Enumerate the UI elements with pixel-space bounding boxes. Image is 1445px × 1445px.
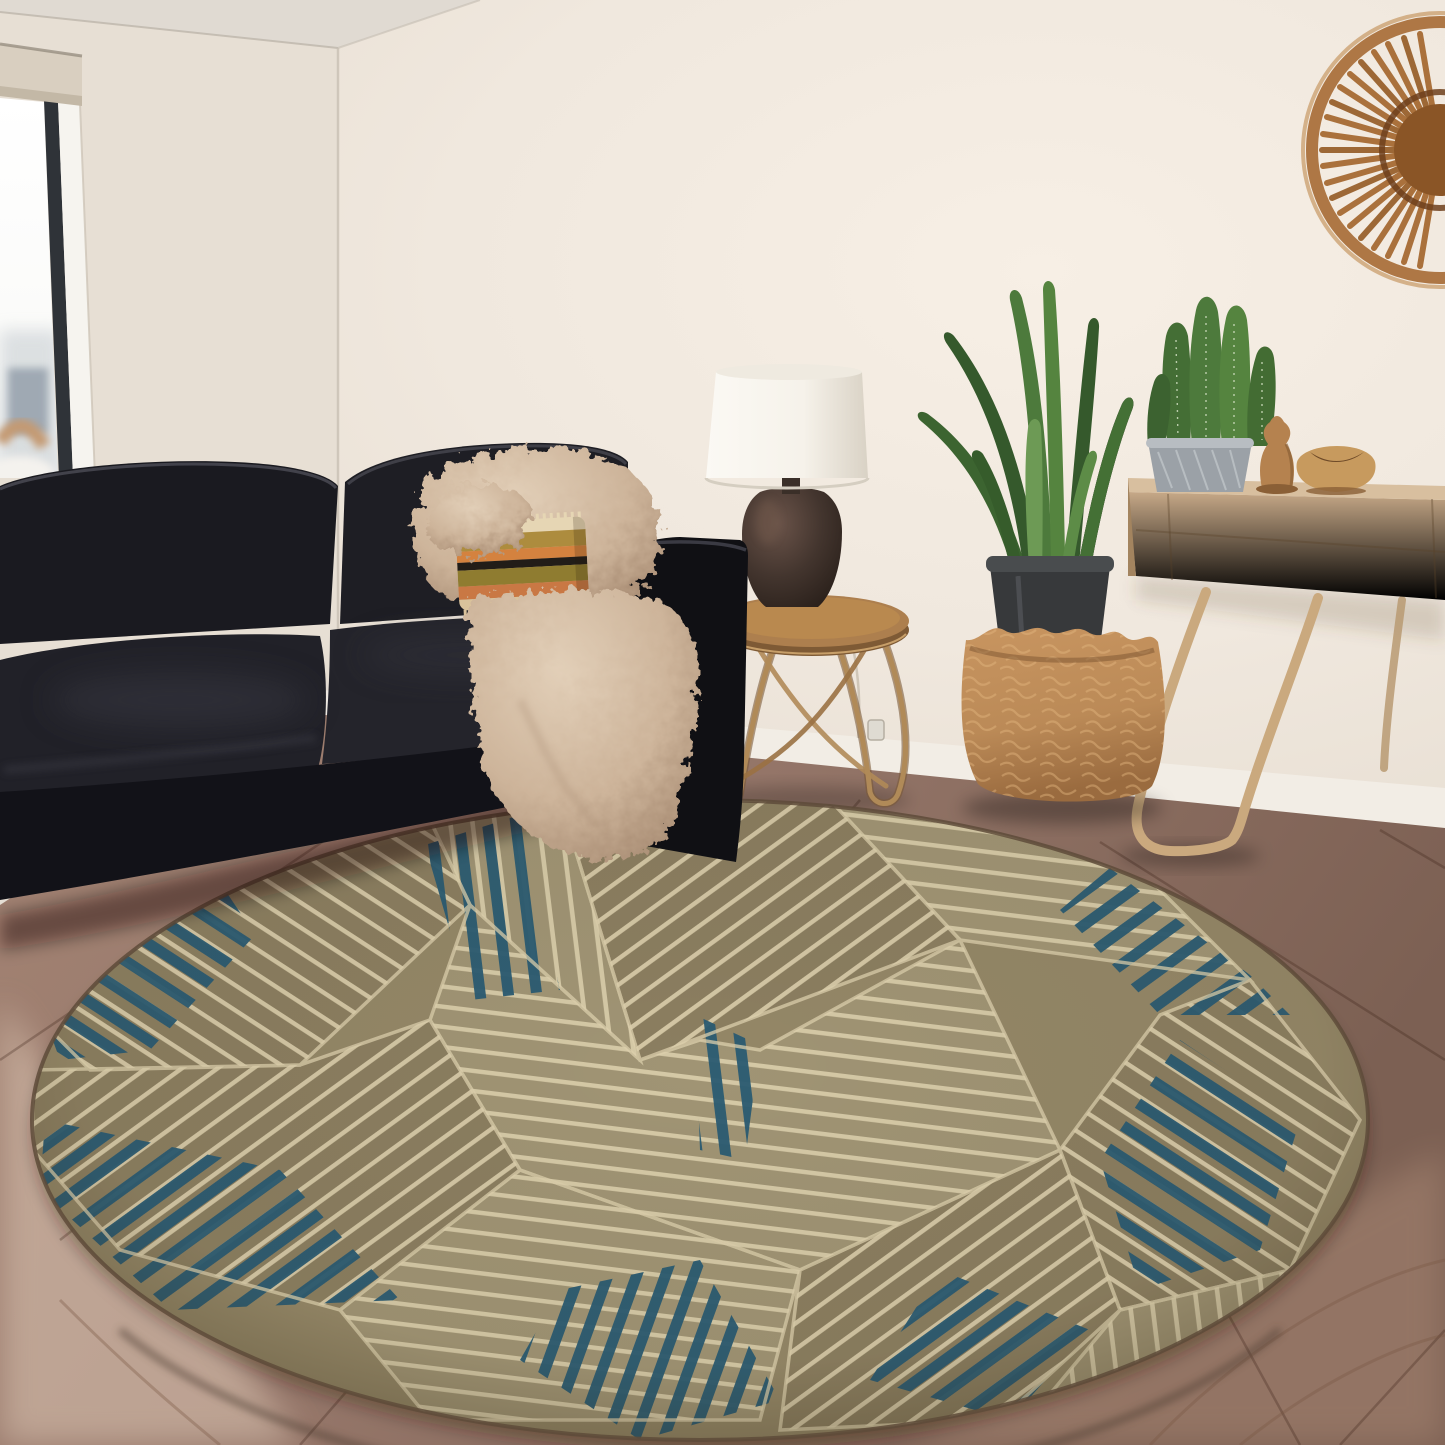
fur-tuft-over-pillow [428, 484, 531, 554]
window-view [0, 330, 60, 488]
nursery-pot-rim [986, 556, 1114, 572]
living-room-photo [0, 0, 1445, 1445]
lamp-neck [782, 476, 800, 494]
window-with-roller-shade [0, 44, 95, 488]
back-cushion-left [0, 461, 338, 644]
woven-basket-planter [962, 628, 1165, 802]
cactus-pot-rim [1146, 438, 1254, 448]
seat-sheen-left [50, 672, 310, 728]
lamp-base-highlight [756, 500, 780, 544]
lamp-shade-top [716, 364, 862, 380]
lamp-base-vase [742, 488, 842, 608]
lamp-shade [706, 372, 868, 478]
bowl-base-shadow [1306, 487, 1366, 495]
wall-outlet [868, 720, 884, 740]
